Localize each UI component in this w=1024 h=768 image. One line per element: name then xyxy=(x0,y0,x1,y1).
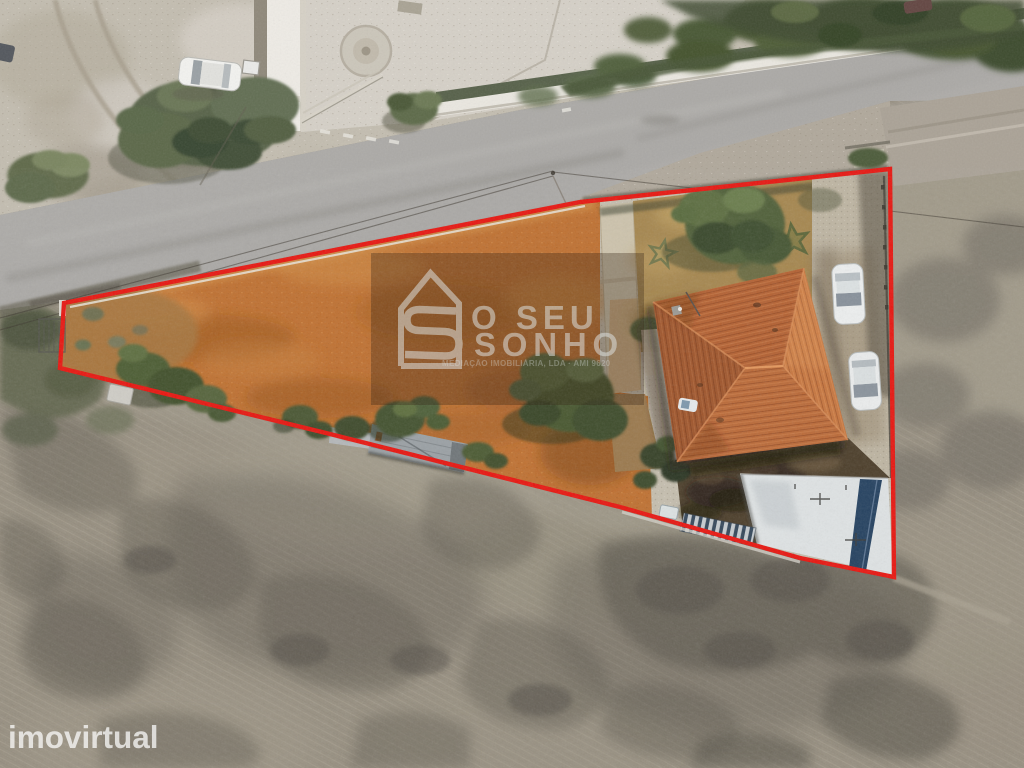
svg-text:imovirtual: imovirtual xyxy=(8,719,159,755)
